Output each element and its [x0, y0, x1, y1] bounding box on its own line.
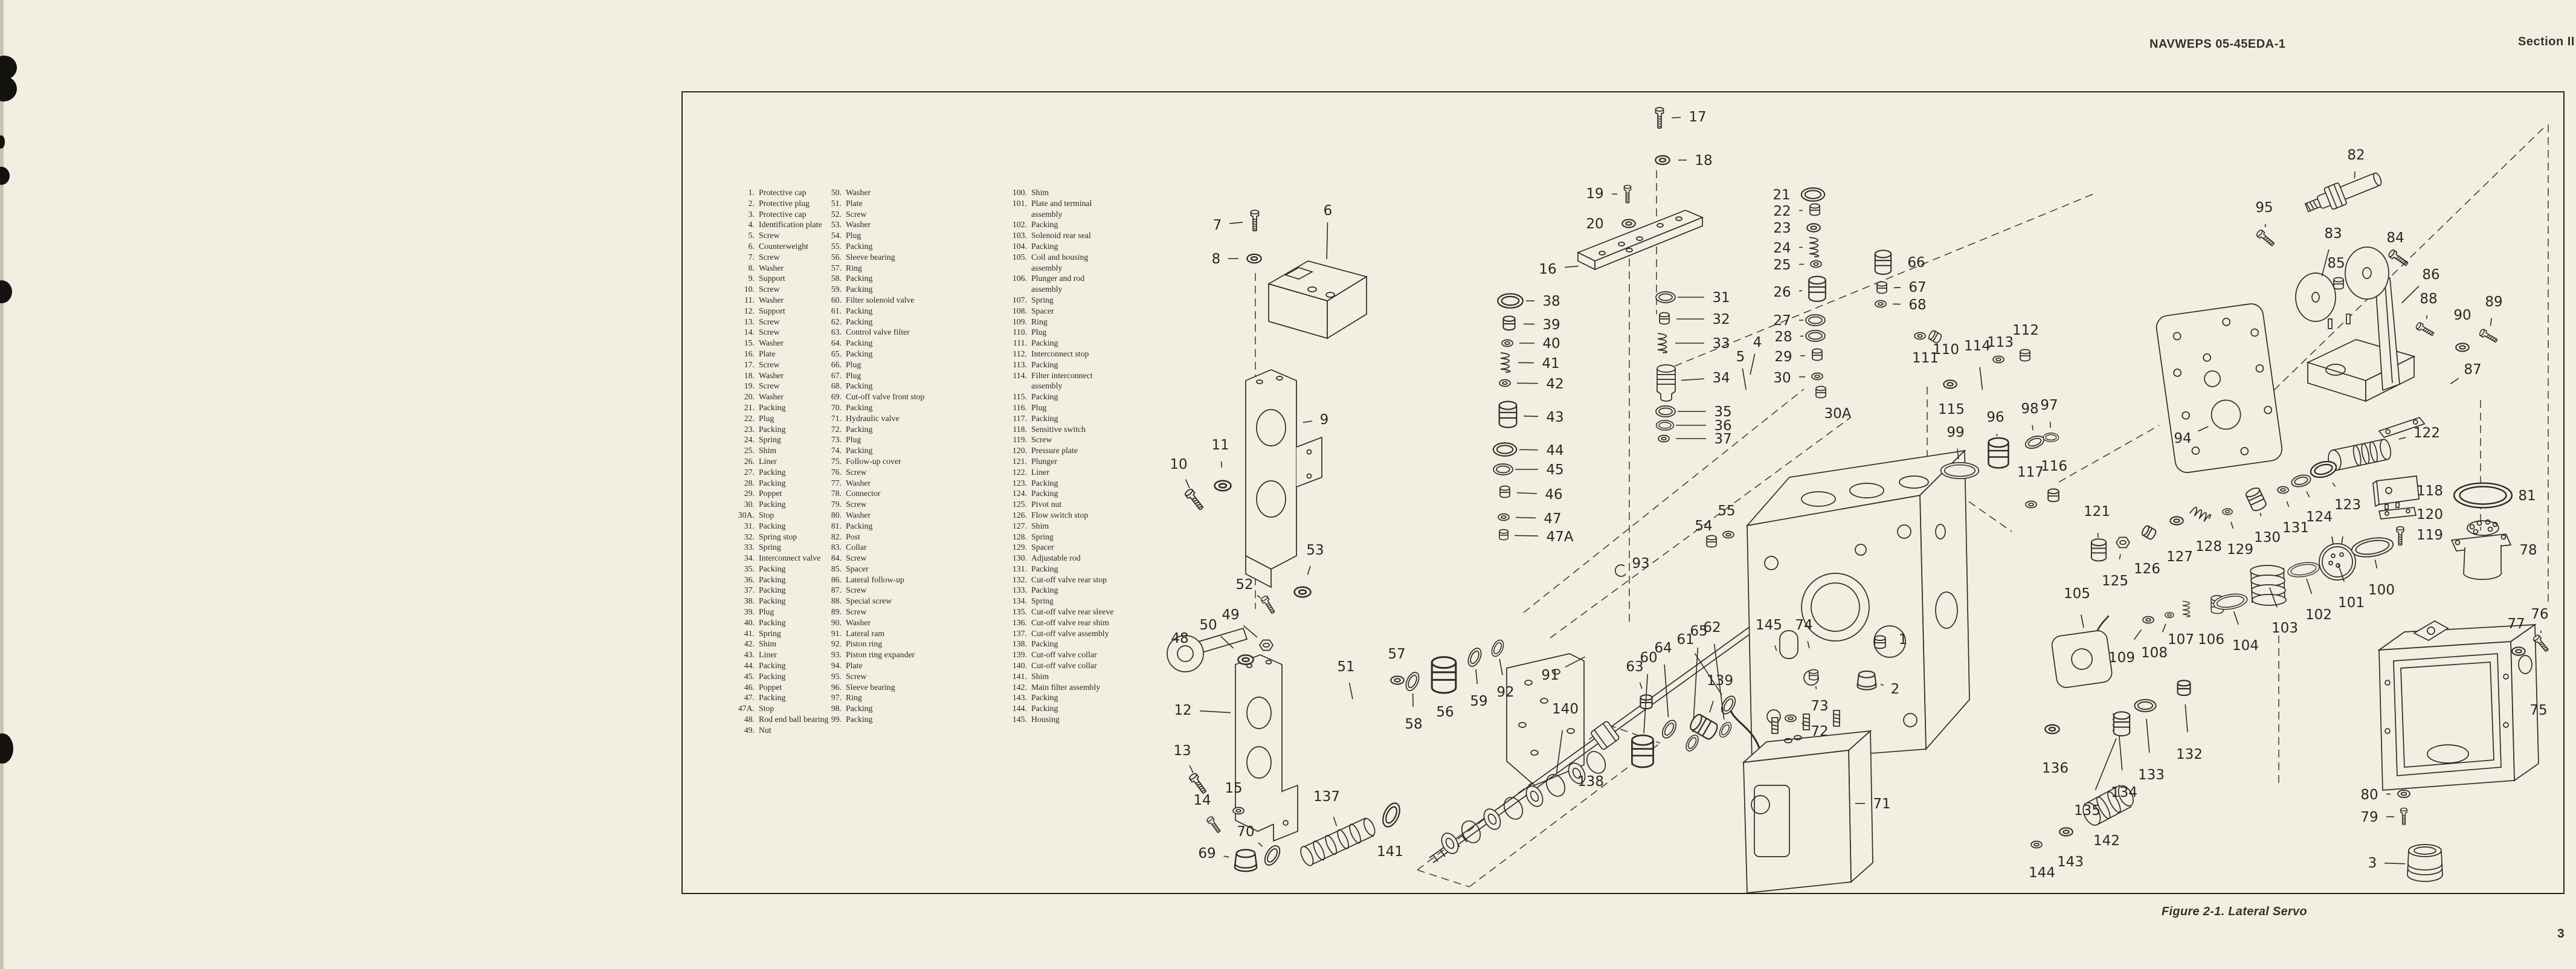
part-glyph [1989, 438, 2009, 468]
callout-leader-line [1229, 222, 1243, 224]
callout-label: 45 [1546, 462, 1563, 478]
part-glyph [2091, 539, 2106, 561]
part-glyph [1295, 587, 1311, 597]
callout-label: 78 [2519, 542, 2537, 558]
part-glyph [2454, 483, 2512, 508]
callout-label: 106 [2198, 632, 2224, 648]
callout-label: 85 [2327, 256, 2345, 271]
callout-label: 5 [1736, 349, 1745, 365]
callout-label: 49 [1222, 607, 1239, 623]
callout-label: 139 [1707, 673, 1733, 689]
callout-leader-line [2119, 736, 2122, 770]
callout-leader-line [2050, 422, 2051, 428]
callout-label: 1 [1899, 632, 1908, 648]
callout-label: 33 [1712, 336, 1730, 352]
part-glyph [1877, 282, 1887, 294]
callout-label: 131 [2282, 520, 2309, 536]
callout-label: 96 [1986, 410, 2004, 425]
part-glyph [1993, 356, 2004, 363]
callout-leader-line [2081, 614, 2084, 628]
callout-leader-line [1517, 383, 1538, 384]
construction-dash-line [1675, 193, 2095, 366]
part-glyph [1380, 800, 1403, 829]
part-glyph [1802, 188, 1824, 201]
callout-label: 124 [2306, 509, 2333, 525]
callout-label: 27 [1773, 313, 1791, 329]
callout-label: 48 [1171, 631, 1188, 646]
part-glyph [1260, 595, 1276, 614]
callout-label: 145 [1756, 617, 1782, 633]
part-glyph [2059, 828, 2073, 835]
part-glyph [1490, 639, 1506, 658]
callout-label: 111 [1912, 350, 1939, 366]
callout-leader-line [1476, 669, 1477, 684]
callout-label: 95 [2255, 200, 2273, 216]
callout-label: 134 [2111, 785, 2137, 800]
callout-label: 31 [1712, 290, 1730, 306]
part-glyph [1875, 301, 1886, 307]
callout-label: 47 [1544, 511, 1561, 527]
callout-label: 140 [1552, 701, 1579, 717]
callout-leader-line [1327, 222, 1327, 259]
callout-label: 75 [2529, 703, 2547, 718]
solenoid-seal-part [2250, 565, 2286, 605]
callout-leader-line [2163, 624, 2166, 633]
part-glyph [2398, 790, 2410, 797]
housing-part [1747, 451, 1969, 762]
callout-label: 128 [2195, 539, 2222, 555]
part-glyph [2134, 700, 2156, 712]
part-glyph [1723, 532, 1734, 538]
part-glyph [1655, 156, 1669, 164]
callout-label: 21 [1773, 187, 1790, 203]
callout-label: 30 [1773, 370, 1791, 386]
part-glyph [1809, 670, 1818, 680]
callout-leader-line [1517, 493, 1537, 494]
callout-leader-line [1258, 843, 1263, 846]
part-glyph [1658, 333, 1667, 353]
part-glyph [2456, 343, 2469, 351]
part-glyph [2512, 647, 2525, 655]
callout-leader-line [1681, 379, 1704, 381]
callout-label: 29 [1774, 349, 1792, 365]
callout-label: 120 [2417, 507, 2443, 523]
callout-label: 7 [1213, 217, 1222, 233]
callout-label: 20 [1586, 216, 1603, 232]
callout-label: 15 [1225, 781, 1242, 796]
callout-leader-line [1672, 117, 1681, 118]
callout-label: 82 [2347, 147, 2365, 163]
callout-label: 101 [2338, 595, 2365, 611]
callout-label: 108 [2141, 645, 2168, 661]
callout-label: 83 [2324, 226, 2342, 242]
callout-leader-line [2333, 483, 2335, 486]
callout-leader-line [1499, 659, 1502, 675]
callout-label: 133 [2138, 767, 2165, 783]
callout-label: 84 [2386, 230, 2404, 246]
callout-label: 77 [2507, 616, 2525, 632]
callout-label: 8 [1212, 251, 1221, 267]
part-glyph [1498, 294, 1523, 307]
part-glyph [1806, 315, 1825, 326]
part-glyph [2183, 601, 2190, 617]
callout-label: 24 [1773, 240, 1791, 256]
terminal-plate-part [2319, 536, 2355, 580]
callout-leader-line [2427, 315, 2427, 319]
callout-label: 87 [2464, 362, 2481, 378]
part-glyph [1233, 808, 1244, 814]
part-glyph [2350, 535, 2394, 560]
part-glyph [1785, 715, 1796, 722]
callout-label: 143 [2057, 854, 2084, 870]
callout-leader-line [1224, 856, 1229, 857]
callout-leader-line [2146, 719, 2149, 753]
callout-label: 47A [1546, 529, 1573, 545]
part-glyph [1812, 349, 1822, 361]
callout-label: 129 [2227, 542, 2253, 558]
callout-leader-line [2402, 286, 2419, 303]
part-glyph [1260, 640, 1273, 651]
callout-label: 9 [1320, 412, 1329, 428]
callout-label: 52 [1235, 577, 1253, 593]
part-glyph [1502, 340, 1513, 347]
callout-label: 117 [2017, 465, 2044, 480]
plate-94-part [2155, 302, 2284, 474]
callout-leader-line [1413, 694, 1414, 707]
sensitive-switch-part [2373, 476, 2419, 509]
callout-label: 10 [1170, 457, 1187, 472]
callout-label: 144 [2029, 865, 2055, 881]
callout-label: 113 [1987, 335, 2014, 350]
cutoff-valve-part [1298, 816, 1377, 868]
callout-label: 6 [1324, 203, 1333, 219]
callout-leader-line [1516, 518, 1536, 518]
callout-label: 59 [1470, 694, 1487, 709]
part-glyph [2116, 538, 2130, 548]
part-glyph [1810, 204, 1820, 216]
protective-cap-part [2407, 845, 2442, 881]
callout-label: 98 [2021, 401, 2038, 417]
part-glyph [1656, 406, 1675, 417]
part-glyph [2256, 229, 2276, 247]
part-glyph [1391, 676, 1404, 684]
callout-leader-line [1640, 683, 1642, 689]
callout-label: 19 [1586, 186, 1603, 202]
part-glyph [1657, 420, 1674, 430]
callout-leader-line [2119, 555, 2120, 559]
part-glyph [1875, 250, 1891, 274]
callout-leader-line [2399, 437, 2406, 439]
callout-leader-line [1980, 367, 1982, 390]
callout-label: 72 [1811, 724, 1828, 739]
part-glyph [2045, 725, 2059, 733]
callout-label: 105 [2064, 586, 2090, 602]
callout-leader-line [1257, 595, 1260, 598]
callout-label: 62 [1703, 620, 1721, 636]
callout-label: 55 [1718, 503, 1735, 519]
callout-label: 142 [2093, 833, 2120, 849]
part-glyph [1811, 261, 1821, 268]
callout-label: 79 [2360, 810, 2378, 825]
callout-label: 100 [2368, 582, 2395, 598]
construction-dash-line [1417, 870, 1469, 887]
callout-label: 12 [1174, 703, 1191, 718]
callout-label: 56 [1436, 704, 1454, 720]
part-glyph [1499, 402, 1517, 428]
callout-label: 3 [2368, 855, 2377, 871]
part-glyph [1941, 463, 1979, 479]
callout-leader-line [2134, 629, 2142, 639]
callout-leader-line [2354, 172, 2355, 178]
callout-label: 39 [1542, 317, 1560, 333]
part-glyph [1493, 464, 1513, 475]
callout-label: 109 [2108, 650, 2135, 666]
callout-label: 97 [2040, 398, 2058, 413]
callout-label: 67 [1908, 280, 1926, 295]
part-glyph [1238, 655, 1253, 664]
part-glyph [2020, 350, 2030, 361]
callout-leader-line [2032, 425, 2033, 431]
callout-leader-line [1524, 416, 1538, 417]
callout-leader-line [1664, 665, 1668, 717]
callout-label: 2 [1891, 681, 1900, 697]
callout-label: 58 [1405, 716, 1422, 732]
callout-label: 89 [2485, 294, 2502, 310]
part-glyph [2043, 433, 2059, 442]
callout-label: 51 [1337, 659, 1354, 675]
callout-leader-line [1200, 711, 1231, 713]
callout-leader-line [2384, 863, 2405, 864]
callout-leader-line [2096, 738, 2117, 790]
support-12-part [1235, 655, 1298, 841]
callout-label: 141 [1377, 844, 1403, 860]
callout-label: 90 [2453, 307, 2471, 323]
callout-label: 25 [1773, 257, 1791, 273]
part-glyph [2290, 473, 2312, 489]
callout-label: 11 [1211, 437, 1229, 453]
callout-label: 122 [2413, 425, 2440, 441]
part-glyph [1809, 237, 1818, 257]
part-glyph [1466, 646, 1484, 669]
callout-label: 16 [1539, 262, 1556, 277]
part-glyph [1432, 657, 1456, 693]
callout-label: 50 [1199, 617, 1217, 633]
callout-leader-line [1190, 765, 1193, 773]
callout-leader-line [1303, 421, 1312, 422]
callout-leader-line [2287, 501, 2288, 507]
callout-label: 80 [2360, 787, 2378, 803]
part-glyph [2048, 489, 2059, 501]
part-glyph [1658, 436, 1669, 442]
callout-label: 44 [1546, 443, 1563, 459]
callout-leader-line [1222, 462, 1222, 468]
part-glyph [1500, 486, 1510, 498]
callout-leader-line [1742, 369, 1746, 390]
callout-label: 103 [2272, 620, 2298, 636]
callout-leader-line [1350, 683, 1353, 699]
part-glyph [1660, 718, 1679, 741]
part-glyph [1499, 380, 1510, 387]
callout-label: 88 [2420, 291, 2437, 307]
part-glyph [1718, 720, 1734, 739]
construction-dash-line [2274, 127, 2545, 390]
callout-leader-line [2450, 378, 2458, 384]
part-glyph [1624, 185, 1631, 203]
callout-label: 116 [2041, 459, 2067, 474]
part-glyph [2141, 525, 2157, 541]
callout-label: 115 [1938, 402, 1965, 417]
callout-label: 130 [2254, 530, 2281, 546]
callout-label: 94 [2174, 431, 2191, 446]
manual-page: NAVWEPS 05-45EDA-1 Section II 1.Protecti… [0, 0, 2576, 969]
part-glyph [2401, 808, 2407, 825]
callout-label: 104 [2232, 638, 2259, 654]
callout-label: 121 [2084, 504, 2110, 520]
connector-part [2452, 520, 2511, 580]
part-glyph [1188, 773, 1208, 795]
part-glyph [1615, 565, 1626, 576]
callout-leader-line [2260, 513, 2261, 516]
callout-label: 42 [1546, 376, 1563, 392]
part-glyph [2170, 517, 2183, 524]
callout-label: 92 [1496, 684, 1514, 700]
part-glyph [1247, 254, 1261, 263]
callout-label: 127 [2166, 549, 2193, 565]
callout-leader-line [1308, 566, 1310, 575]
callout-label: 136 [2042, 761, 2069, 776]
callout-label: 22 [1773, 204, 1791, 219]
callout-label: 74 [1795, 617, 1812, 633]
part-glyph [1809, 277, 1826, 301]
callout-label: 38 [1542, 294, 1560, 309]
callout-label: 125 [2102, 573, 2128, 589]
part-glyph [1206, 816, 1222, 834]
callout-label: 69 [1198, 846, 1216, 861]
part-glyph [1251, 210, 1259, 231]
callout-label: 37 [1714, 431, 1731, 447]
callout-label: 126 [2134, 561, 2160, 577]
callout-label: 34 [1712, 370, 1730, 386]
part-glyph [1403, 671, 1422, 693]
part-glyph [1262, 843, 1283, 868]
part-glyph [1812, 373, 1823, 380]
callout-label: 99 [1946, 425, 1964, 440]
callout-leader-line [2307, 492, 2310, 497]
callout-label: 46 [1545, 487, 1562, 503]
callout-label: 4 [1753, 335, 1762, 350]
callout-leader-line [1816, 686, 1817, 689]
part-glyph [2031, 842, 2042, 848]
lateral-follow-up-part [2296, 247, 2414, 401]
part-glyph [2334, 278, 2343, 289]
part-glyph [2212, 591, 2248, 611]
callout-label: 17 [1689, 109, 1706, 125]
part-glyph [1498, 514, 1509, 521]
callout-label: 135 [2074, 803, 2101, 819]
callout-label: 81 [2518, 488, 2536, 504]
callout-label: 112 [2012, 323, 2039, 338]
callout-leader-line [2491, 318, 2492, 326]
callout-label: 123 [2334, 497, 2361, 513]
callout-leader-line [2307, 579, 2311, 594]
callout-label: 119 [2417, 527, 2443, 543]
callout-label: 41 [1542, 356, 1559, 372]
callout-label: 13 [1173, 743, 1191, 759]
pressure-plate-part [2379, 507, 2416, 519]
callout-label: 91 [1541, 668, 1559, 683]
callout-label: 18 [1695, 153, 1712, 169]
callout-label: 23 [1773, 221, 1791, 236]
callout-label: 93 [1632, 556, 1649, 571]
callout-label: 118 [2417, 483, 2443, 499]
part-glyph [2479, 329, 2498, 344]
follow-up-cover-part [2379, 621, 2539, 790]
callout-label: 107 [2168, 632, 2194, 648]
callout-label: 43 [1546, 410, 1563, 425]
part-glyph [1656, 108, 1664, 128]
part-glyph [2026, 501, 2037, 508]
callout-leader-line [1515, 535, 1538, 536]
part-glyph [2415, 322, 2435, 337]
part-glyph [1656, 292, 1675, 303]
part-glyph [1501, 353, 1510, 372]
part-glyph [2114, 712, 2130, 736]
callout-label: 86 [2422, 267, 2439, 283]
part-glyph [2178, 680, 2191, 695]
part-glyph [2287, 560, 2320, 579]
construction-dash-line [2059, 425, 2159, 482]
exploded-diagram: 1718192016786910112122232425262728293030… [0, 0, 2576, 969]
callout-label: 64 [1654, 640, 1672, 656]
callout-leader-line [2375, 560, 2377, 568]
callout-leader-line [1750, 354, 1755, 375]
interconnect-valve-part [1657, 365, 1675, 401]
callout-label: 66 [1907, 255, 1925, 271]
part-glyph [1816, 387, 1826, 398]
callout-label: 132 [2176, 747, 2203, 762]
callout-label: 32 [1712, 312, 1730, 327]
part-glyph [1857, 671, 1876, 690]
callout-label: 68 [1908, 297, 1926, 313]
part-glyph [1707, 536, 1716, 547]
callout-label: 73 [1811, 698, 1828, 714]
callout-label: 102 [2305, 607, 2332, 623]
callout-label: 70 [1237, 824, 1254, 840]
post-part [2302, 167, 2384, 218]
part-glyph [2245, 486, 2267, 512]
callout-label: 14 [1193, 793, 1211, 808]
part-glyph [1943, 380, 1957, 388]
callout-leader-line [2185, 704, 2188, 732]
callout-leader-line [2231, 522, 2233, 529]
callout-label: 76 [2531, 607, 2548, 622]
part-glyph [1622, 219, 1635, 227]
counterweight-part [1269, 261, 1367, 338]
part-glyph [1807, 224, 1820, 231]
part-glyph [2143, 617, 2154, 623]
part-glyph [1806, 330, 1825, 341]
callout-leader-line [1710, 701, 1713, 712]
part-glyph [2397, 527, 2404, 546]
callout-leader-line [1565, 266, 1579, 267]
callout-label: 138 [1577, 774, 1604, 790]
part-glyph [1215, 481, 1231, 491]
part-glyph [1684, 733, 1701, 753]
part-glyph [2278, 487, 2288, 494]
part-glyph [1632, 735, 1653, 767]
part-glyph [1493, 443, 1516, 456]
part-glyph [1914, 333, 1925, 340]
